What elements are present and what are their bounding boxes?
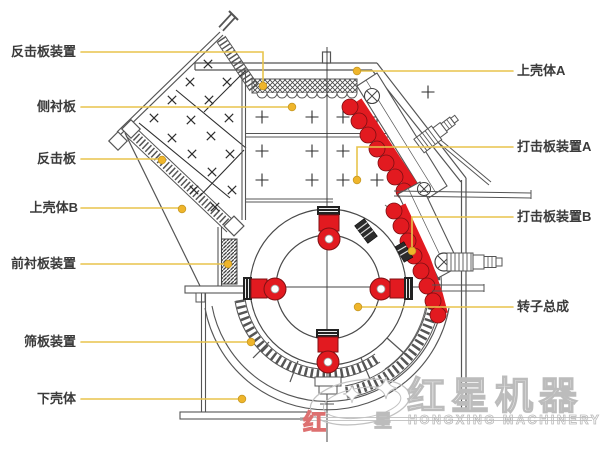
callout-dot [353,176,361,184]
callout-front-liner-assembly: 前衬板装置 [11,256,232,271]
bolt-cross-b [418,183,431,196]
callout-dot [288,103,296,111]
rotor-hammers [243,206,413,373]
callout-dot [353,67,361,75]
callout-impact-plate: 反击板 [37,151,166,166]
callout-side-liner: 侧衬板 [37,99,296,114]
svg-text:打击板装置A: 打击板装置A [517,139,592,154]
svg-text:反击板装置: 反击板装置 [11,44,76,59]
svg-text:上壳体B: 上壳体B [30,200,78,215]
callout-dot [259,82,267,90]
callout-dot [354,303,362,311]
hammer-bottom [316,329,339,373]
watermark: 红星机器 HONGXING MACHINERY 红 星 [300,373,600,435]
watermark-brand-cn: 红星机器 [407,376,583,418]
watermark-brand-en: HONGXING MACHINERY [408,413,600,427]
base-plate [180,412,307,419]
top-plate [195,63,377,70]
callout-dot [178,205,186,213]
watermark-char-red: 红 [303,409,326,435]
callout-dot [224,260,232,268]
svg-text:下壳体: 下壳体 [37,391,77,406]
svg-text:转子总成: 转子总成 [517,299,569,314]
svg-text:反击板: 反击板 [37,151,77,166]
hammer-left [243,277,286,300]
hammer-right [370,277,413,300]
callout-upper-casing-a: 上壳体A [353,63,566,78]
svg-text:上壳体A: 上壳体A [517,63,566,78]
impact-plate-assembly-bar [252,79,357,98]
callout-dot [408,247,416,255]
support-leg [202,293,206,412]
crusher-structure-diagram: 红星机器 HONGXING MACHINERY 红 星 反击板装置 侧衬板 反击… [0,0,600,450]
x-liner-marks [150,60,236,211]
adjusting-bolt-b [447,253,502,271]
callout-screen-plate-assembly: 筛板装置 [24,334,255,349]
top-stub [323,52,331,63]
svg-text:侧衬板: 侧衬板 [37,99,77,114]
hammer-top [317,206,340,250]
callout-dot [158,156,166,164]
bar-pads [257,93,357,98]
blow-bar-assembly-b [386,182,531,323]
svg-text:前衬板装置: 前衬板装置 [11,256,76,271]
svg-text:筛板装置: 筛板装置 [24,334,76,349]
clamp-a [355,219,378,244]
callout-lower-casing: 下壳体 [37,391,246,406]
shelf-bracket [196,293,205,302]
callout-dot [247,338,255,346]
chute-outer-edge [117,32,223,135]
callout-dot [238,395,246,403]
svg-text:打击板装置B: 打击板装置B [517,209,591,224]
watermark-char-gray: 星 [374,411,392,431]
shelf [185,286,248,293]
feed-chute-liner [109,11,258,236]
bolt-cross-a [365,89,380,104]
diagram-canvas: 红星机器 HONGXING MACHINERY 红 星 反击板装置 侧衬板 反击… [0,0,600,450]
callout-upper-casing-b: 上壳体B [30,200,186,215]
